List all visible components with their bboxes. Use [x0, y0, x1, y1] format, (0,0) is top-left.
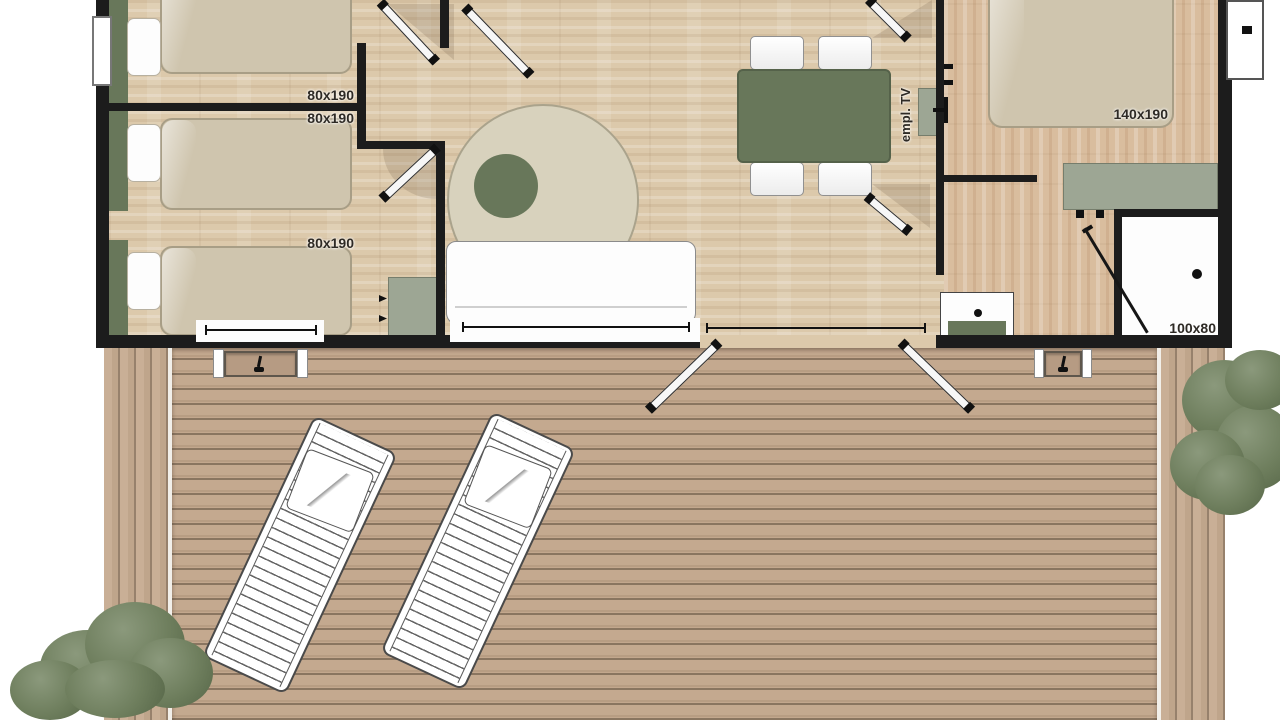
window-end-tick — [315, 325, 317, 335]
window-bedroom3 — [196, 320, 324, 342]
tv-location-label: empl. TV — [898, 67, 914, 163]
tree — [1170, 350, 1280, 530]
tree-foliage — [65, 660, 165, 718]
pillow — [127, 124, 161, 182]
window-end-tick — [924, 323, 926, 333]
wardrobe-foot — [1096, 210, 1104, 218]
sofa-seat-line — [455, 306, 687, 308]
outlet-icon — [944, 64, 953, 69]
sofa — [446, 241, 696, 325]
window-right-wall — [1226, 0, 1264, 80]
wardrobe-left-room — [388, 277, 437, 343]
window-end-tick — [462, 322, 464, 332]
dining-chair — [818, 162, 872, 196]
shower-size-label: 100x80 — [1140, 320, 1216, 336]
pillow — [127, 18, 161, 76]
window-left-wall — [92, 16, 112, 86]
wall-hall-left — [357, 43, 366, 149]
window-glaze-line — [462, 326, 690, 328]
bed-size-label: 80x190 — [282, 110, 354, 126]
floor-plan-scene: 80x190 80x190 80x190 empl. TV 140x190 10… — [0, 0, 1280, 720]
window-glaze-line — [205, 329, 317, 331]
window-end-tick — [706, 323, 708, 333]
window-end-tick — [205, 325, 207, 335]
step-post — [297, 349, 308, 378]
window-handle-icon — [1242, 26, 1252, 34]
wall-shower-top — [1114, 209, 1218, 217]
wardrobe-foot — [1076, 210, 1084, 218]
dining-chair — [750, 36, 804, 70]
lantern-icon — [1058, 356, 1068, 372]
step-post — [1082, 349, 1092, 378]
step-post — [213, 349, 224, 378]
tv-unit — [918, 88, 938, 136]
single-bed-2 — [160, 118, 352, 210]
dining-chair — [818, 36, 872, 70]
headboard-shelf — [109, 240, 128, 336]
tv-mount-icon — [944, 97, 948, 123]
wardrobe-master — [1063, 163, 1218, 210]
outlet-icon — [944, 80, 953, 85]
tree — [10, 590, 220, 720]
round-pouf — [474, 154, 538, 218]
wall-top-stub — [440, 0, 449, 48]
wall-bathroom-top — [936, 175, 1037, 182]
headboard-shelf — [109, 111, 128, 211]
tree-foliage — [1195, 455, 1265, 515]
bed-size-label: 140x190 — [1096, 106, 1168, 122]
wall-living-bedroom — [936, 0, 944, 275]
bed-size-label: 80x190 — [282, 87, 354, 103]
bed-size-label: 80x190 — [282, 235, 354, 251]
vanity-mat — [948, 321, 1006, 336]
lantern-icon — [254, 356, 264, 372]
single-bed-1 — [160, 0, 352, 74]
dining-chair — [750, 162, 804, 196]
patio-door-track — [706, 327, 926, 329]
wall-left-rooms-right — [436, 141, 445, 348]
window-end-tick — [688, 322, 690, 332]
pillow — [127, 252, 161, 310]
drain-icon — [1192, 269, 1202, 279]
basin-icon — [974, 309, 982, 317]
dining-table — [737, 69, 891, 163]
step-post — [1034, 349, 1044, 378]
window-living — [450, 318, 700, 342]
